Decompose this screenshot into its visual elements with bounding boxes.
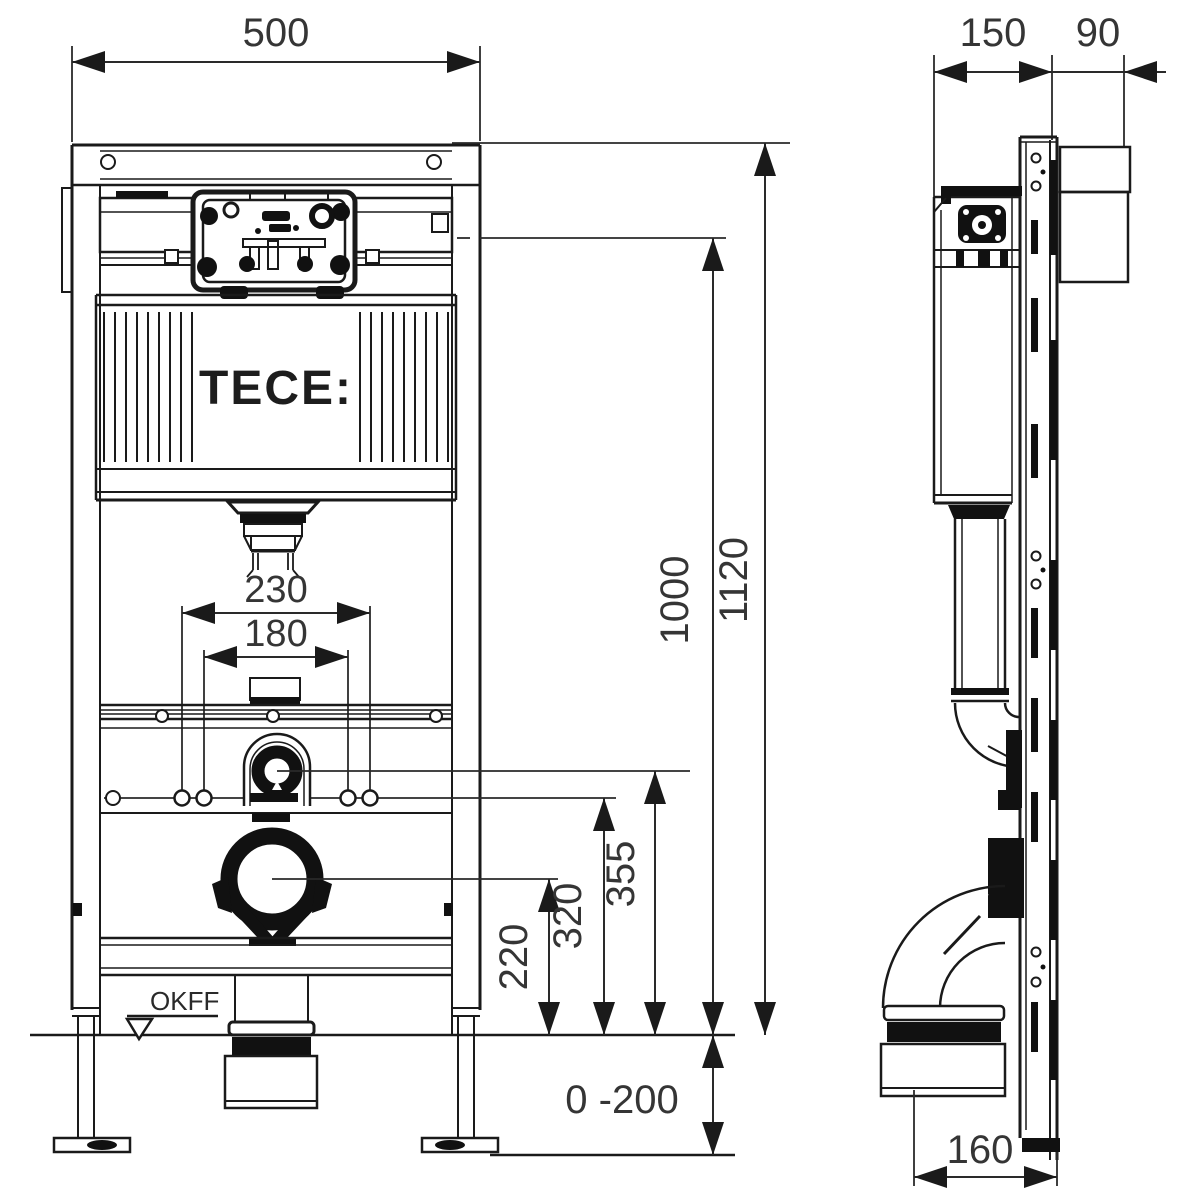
dim-width: 500: [72, 11, 480, 142]
dim-floor-adjust-label: 0 -200: [565, 1078, 678, 1122]
dim-upper-height-label: 1000: [653, 556, 697, 645]
dim-drain-height: 220: [492, 879, 549, 1035]
dim-rods-inner-label: 180: [244, 613, 307, 655]
side-view: 150 90: [881, 11, 1166, 1186]
frame-screw-icon: [427, 155, 441, 169]
rod-bolt-icon: [363, 791, 378, 806]
dim-rods-outer-label: 230: [244, 569, 307, 611]
upper-crossbar: [100, 705, 452, 728]
floor-level: OKFF: [30, 986, 735, 1155]
water-connection: [244, 734, 690, 806]
cistern-side: [934, 186, 1022, 503]
dim-flush-bend-height-label: 355: [599, 841, 643, 908]
rail-foot: [1022, 1138, 1060, 1152]
flush-pipe-side: [948, 505, 1022, 810]
technical-drawing: 500: [0, 0, 1200, 1200]
corrugation-right: [360, 312, 448, 462]
drain-bend-side: [881, 838, 1024, 1096]
rod-bolt-icon: [175, 791, 190, 806]
leg-lock-screw-icon: [73, 903, 82, 916]
rod-bolt-icon: [341, 791, 356, 806]
dim-drain-height-label: 220: [492, 924, 536, 991]
okff-label: OKFF: [150, 986, 219, 1016]
dim-floor-adjust: 0 -200: [565, 1035, 713, 1155]
rod-bolt-icon: [197, 791, 212, 806]
cistern: TECE:: [96, 295, 456, 500]
drain-socket: [225, 975, 317, 1108]
dim-upper-height: 1000: [457, 238, 726, 1035]
threaded-rods: [100, 791, 616, 823]
frame-screw-icon: [101, 155, 115, 169]
flush-valve-unit: [100, 191, 452, 299]
fill-valve-icon: [958, 205, 1006, 243]
dim-drain-offset-label: 160: [947, 1128, 1014, 1172]
dim-flush-bend-height: 355: [599, 771, 655, 1035]
dim-rods-height-label: 320: [546, 883, 590, 950]
leg-lock-screw-icon: [444, 903, 453, 916]
rail-holes: [1032, 154, 1046, 987]
dim-frame-depth-label: 150: [960, 11, 1027, 55]
dim-rods-height: 320: [546, 798, 604, 1035]
front-view: 500: [30, 11, 790, 1155]
flush-plate-box: [1060, 147, 1130, 282]
mounting-rail: [1020, 137, 1060, 1160]
corrugation-left: [104, 312, 192, 462]
dim-width-label: 500: [243, 11, 310, 55]
drawing-page: 500: [0, 0, 1200, 1200]
dim-wall-clearance-label: 90: [1076, 11, 1121, 55]
tece-logo: TECE:: [199, 362, 353, 415]
dim-total-height-label: 1120: [712, 537, 756, 623]
